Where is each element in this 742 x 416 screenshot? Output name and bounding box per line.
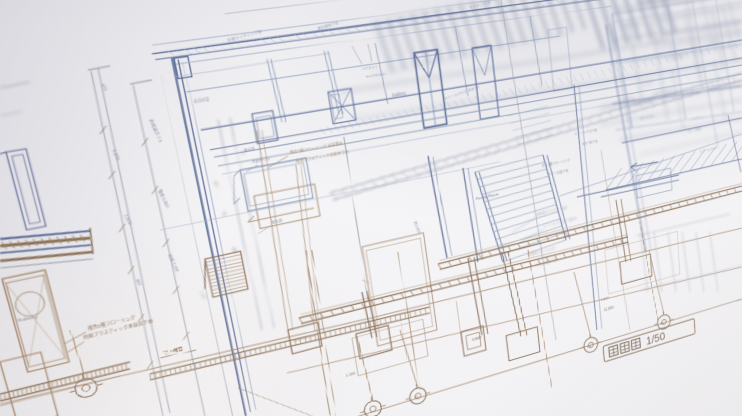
- svg-text:階高 5,800: 階高 5,800: [156, 188, 171, 208]
- svg-text:470: 470: [99, 83, 107, 92]
- svg-text:35: 35: [221, 211, 227, 217]
- svg-text:納戸2帖 押入: 納戸2帖 押入: [640, 114, 656, 121]
- svg-text:W=1775.5mm: W=1775.5mm: [366, 72, 386, 79]
- svg-text:約1,400: 約1,400: [413, 220, 422, 234]
- svg-text:約高 3,150: 約高 3,150: [167, 253, 181, 273]
- svg-text:1/50: 1/50: [646, 330, 666, 347]
- svg-text:150: 150: [212, 181, 219, 189]
- svg-text:3,150: 3,150: [110, 149, 120, 161]
- svg-text:製図番号略記: 製図番号略記: [622, 21, 642, 29]
- svg-text:11,500: 11,500: [604, 305, 614, 312]
- svg-text:軒高梁芯 7,4: 軒高梁芯 7,4: [147, 118, 164, 143]
- svg-text:1,300: 1,300: [346, 372, 356, 378]
- svg-text:Hallway: Hallway: [17, 314, 38, 324]
- svg-text:仕上1種フローリング: 仕上1種フローリング: [542, 157, 571, 168]
- svg-text:多目的室: 多目的室: [193, 97, 210, 105]
- svg-text:Y1: Y1: [414, 394, 420, 400]
- svg-text:2,800: 2,800: [122, 214, 132, 226]
- svg-text:1,100: 1,100: [199, 291, 207, 301]
- svg-text:種水剤: 種水剤: [243, 146, 255, 153]
